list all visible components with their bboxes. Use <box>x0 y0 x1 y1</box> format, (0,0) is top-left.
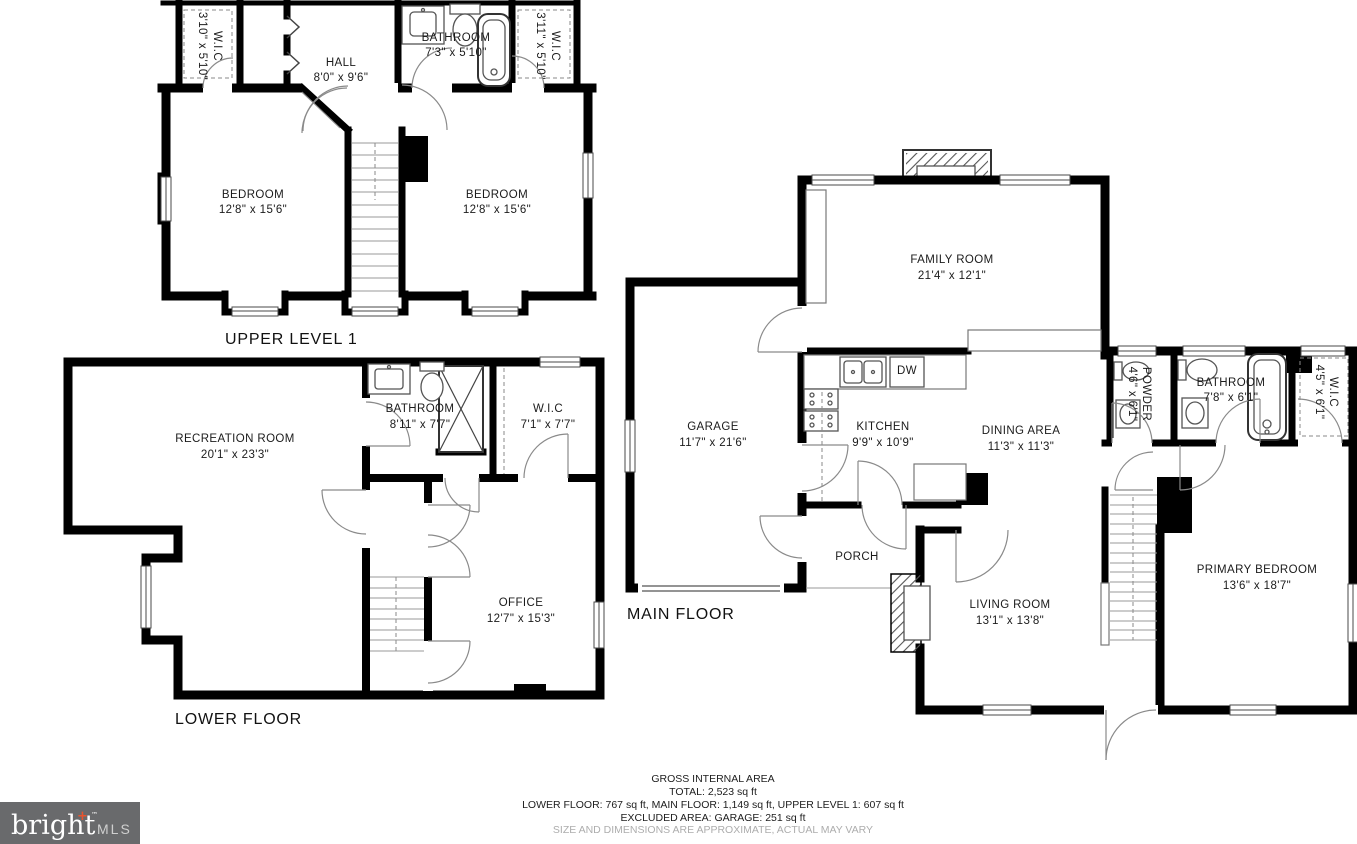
room-label-dining-dims: 11'3" x 11'3" <box>988 441 1055 453</box>
lower-labels: RECREATION ROOM 20'1" x 23'3" BATHROOM 8… <box>175 403 575 728</box>
sink-icon <box>368 364 410 394</box>
main-floor-plan: DW <box>625 150 1357 760</box>
footer-floor-areas: LOWER FLOOR: 767 sq ft, MAIN FLOOR: 1,14… <box>522 799 904 811</box>
upper-floor-title: UPPER LEVEL 1 <box>225 331 358 348</box>
room-label-main-bathroom-dims: 7'8" x 6'1" <box>1204 392 1259 404</box>
room-label-kitchen-name: KITCHEN <box>856 421 909 433</box>
room-label-wic-right-name: W.I.C <box>549 31 561 61</box>
room-label-main-wic-dims: 4'5" x 6'1" <box>1313 365 1325 420</box>
room-label-garage-dims: 11'7" x 21'6" <box>679 437 746 449</box>
room-label-wic-left-name: W.I.C <box>211 31 223 61</box>
room-label-lower-bathroom-dims: 8'11" x 7'7" <box>390 419 451 431</box>
room-label-office-name: OFFICE <box>499 597 544 609</box>
brightmls-logo: bright + ™ MLS <box>0 802 140 844</box>
room-label-hall-name: HALL <box>326 57 357 69</box>
room-label-lower-wic-dims: 7'1" x 7'7" <box>521 419 576 431</box>
main-fireplace-icon <box>891 574 930 652</box>
room-label-dining-name: DINING AREA <box>982 425 1061 437</box>
room-label-living-name: LIVING ROOM <box>969 599 1050 611</box>
room-label-upper-bathroom-dims: 7'3" x 5'10" <box>425 47 486 59</box>
stove-icon <box>804 389 838 431</box>
lower-floor-plan: RECREATION ROOM 20'1" x 23'3" BATHROOM 8… <box>68 357 604 728</box>
room-label-recreation-name: RECREATION ROOM <box>175 433 295 445</box>
room-label-powder-name: POWDER <box>1140 367 1152 421</box>
room-label-upper-bathroom-name: BATHROOM <box>422 32 491 44</box>
lower-floor-title: LOWER FLOOR <box>175 711 302 728</box>
floorplan-svg: W.I.C 3'10" x 5'10" HALL 8'0" x 9'6" BAT… <box>0 0 1357 844</box>
room-label-main-wic-name: W.I.C <box>1327 377 1339 407</box>
room-label-wic-left-dims: 3'10" x 5'10" <box>196 12 208 80</box>
room-label-lower-bathroom-name: BATHROOM <box>386 403 455 415</box>
footer-total: TOTAL: 2,523 sq ft <box>669 786 757 798</box>
dishwasher-label: DW <box>897 365 917 377</box>
room-label-lower-wic-name: W.I.C <box>533 403 563 415</box>
logo-trademark: ™ <box>91 811 98 819</box>
room-label-kitchen-dims: 9'9" x 10'9" <box>852 437 913 449</box>
footer-gross-area: GROSS INTERNAL AREA <box>651 773 774 785</box>
room-label-porch-name: PORCH <box>835 551 879 563</box>
room-label-bedroom-right-name: BEDROOM <box>466 189 528 201</box>
dishwasher-icon: DW <box>890 357 924 387</box>
room-label-office-dims: 12'7" x 15'3" <box>487 613 555 625</box>
room-label-primary-name: PRIMARY BEDROOM <box>1197 564 1318 576</box>
toilet-icon <box>420 362 444 401</box>
lower-stairs-icon <box>370 577 424 651</box>
room-label-bedroom-left-name: BEDROOM <box>222 189 284 201</box>
logo-mls-text: MLS <box>97 821 132 837</box>
room-label-garage-name: GARAGE <box>687 421 739 433</box>
room-label-living-dims: 13'1" x 13'8" <box>976 615 1044 627</box>
lower-walls <box>68 362 600 695</box>
room-label-family-dims: 21'4" x 12'1" <box>918 270 986 282</box>
main-stairs-icon <box>1110 495 1157 640</box>
logo-plus-icon: + <box>77 809 88 824</box>
room-label-main-bathroom-name: BATHROOM <box>1197 377 1266 389</box>
room-label-family-name: FAMILY ROOM <box>910 254 993 266</box>
room-label-primary-dims: 13'6" x 18'7" <box>1223 580 1291 592</box>
upper-stairs-icon <box>352 143 398 291</box>
room-label-recreation-dims: 20'1" x 23'3" <box>201 449 269 461</box>
floorplan-image: W.I.C 3'10" x 5'10" HALL 8'0" x 9'6" BAT… <box>0 0 1357 844</box>
footer-excluded: EXCLUDED AREA: GARAGE: 251 sq ft <box>621 812 806 824</box>
footer-disclaimer: SIZE AND DIMENSIONS ARE APPROXIMATE, ACT… <box>553 824 873 836</box>
room-label-hall-dims: 8'0" x 9'6" <box>314 72 369 84</box>
room-label-wic-right-dims: 3'11" x 5'10" <box>534 12 546 79</box>
kitchen-sink-icon <box>840 357 886 387</box>
upper-level-plan: W.I.C 3'10" x 5'10" HALL 8'0" x 9'6" BAT… <box>161 3 593 348</box>
footer-area-summary: GROSS INTERNAL AREA TOTAL: 2,523 sq ft L… <box>522 773 904 836</box>
room-label-bedroom-right-dims: 12'8" x 15'6" <box>463 204 531 216</box>
room-label-powder-dims: 4'6" x 6'1" <box>1126 367 1138 422</box>
main-floor-title: MAIN FLOOR <box>627 606 735 623</box>
room-label-bedroom-left-dims: 12'8" x 15'6" <box>219 204 287 216</box>
